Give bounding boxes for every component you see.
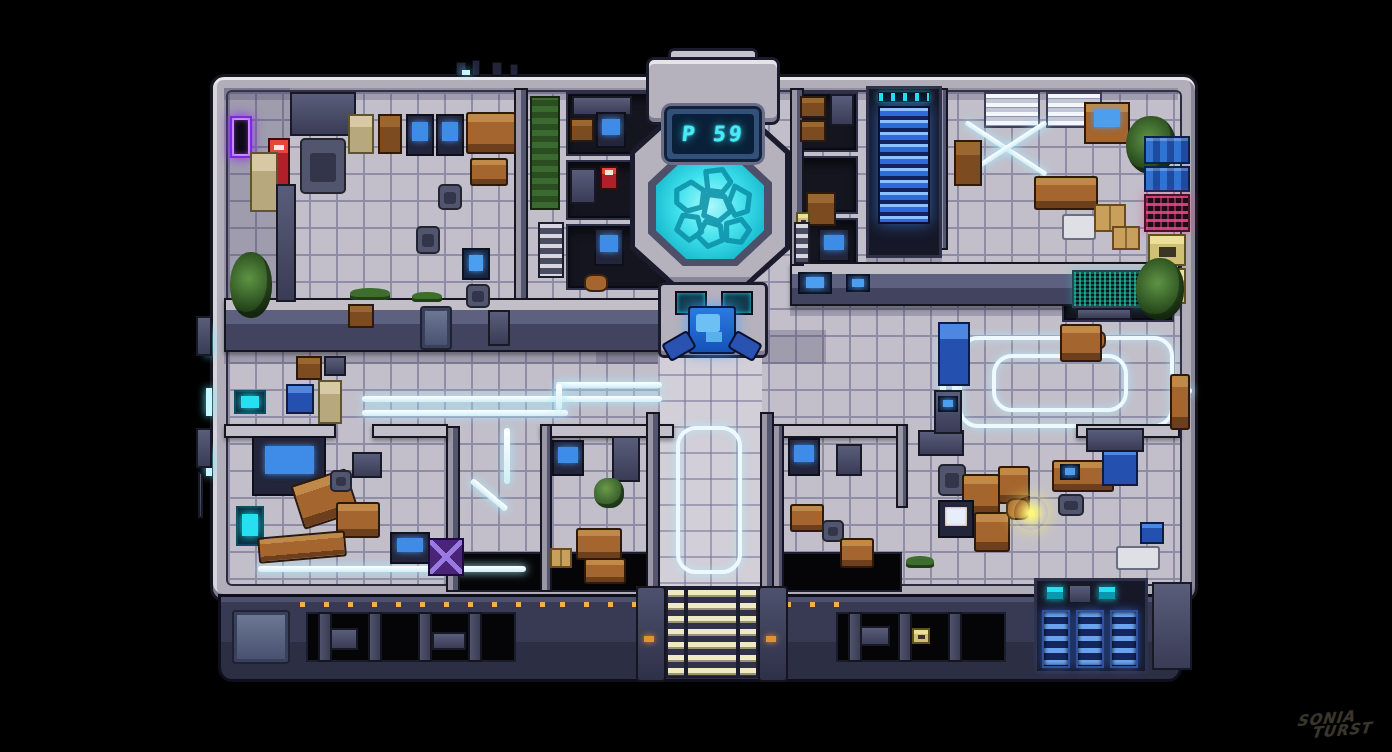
bench-dark xyxy=(1076,308,1132,320)
side-cabinet xyxy=(352,452,382,478)
loop-inner xyxy=(992,354,1128,412)
kitchen-cabinet-tan xyxy=(250,152,278,212)
stairs-blue-glow[interactable] xyxy=(878,106,930,224)
wall-cabinet xyxy=(570,168,596,204)
wood-stool xyxy=(584,274,608,292)
floor-line-join xyxy=(556,384,562,410)
server-panel xyxy=(1068,584,1092,604)
floor-line-workshop-v xyxy=(504,428,510,484)
room-bottom-dark-b xyxy=(774,552,902,592)
basement-device-yellow xyxy=(912,628,930,644)
wood-crate xyxy=(800,96,826,118)
ladder[interactable] xyxy=(794,222,810,264)
vent-panel-a xyxy=(984,92,1040,128)
roof-antenna xyxy=(510,64,518,76)
crate-tan xyxy=(550,548,572,568)
red-device xyxy=(600,166,618,190)
vending-machine-tan xyxy=(318,380,342,424)
computer-desk xyxy=(390,532,430,564)
laptop xyxy=(1060,464,1080,480)
office-chair xyxy=(438,184,462,210)
basement-door xyxy=(232,610,290,664)
basement-pillar xyxy=(948,612,962,662)
status-display-text: P 59 xyxy=(680,122,745,146)
cabinet-row xyxy=(1086,428,1144,452)
wood-desk xyxy=(1060,324,1102,362)
storage-desk xyxy=(584,558,626,584)
entrance-stairs-center[interactable] xyxy=(686,588,738,678)
wall-corridor-left xyxy=(646,412,660,592)
wall-left-room-divider xyxy=(514,88,528,308)
wood-shelf-tall xyxy=(1170,374,1190,430)
computer-desk-wood xyxy=(1084,102,1130,144)
basement-machinery xyxy=(330,628,358,650)
artist-signature: SONIA TURST xyxy=(1295,709,1373,741)
container-blue xyxy=(1144,166,1190,192)
server-screen-cyan xyxy=(1098,586,1116,600)
energy-pool-glass xyxy=(656,157,764,259)
recliner-chair xyxy=(300,138,346,194)
crate-tan xyxy=(1112,226,1140,250)
fridge-blue xyxy=(286,384,314,414)
wood-crate xyxy=(570,118,594,142)
utility-tower xyxy=(1152,582,1192,670)
office-chair xyxy=(1058,494,1084,516)
corridor-octagon xyxy=(676,426,742,574)
glow-lamp xyxy=(1014,496,1048,530)
office-chair xyxy=(466,284,490,308)
computer-desk xyxy=(552,440,584,476)
crate-column xyxy=(276,184,296,302)
console-screen xyxy=(846,274,870,292)
wood-crate xyxy=(800,120,826,142)
basement-lights xyxy=(300,602,550,607)
white-bench xyxy=(1116,546,1160,570)
microwave xyxy=(324,356,346,376)
wall-rightrooms-top xyxy=(772,424,906,438)
wood-cabinet xyxy=(378,114,402,154)
locker-tall xyxy=(612,436,640,482)
wood-desk xyxy=(790,504,824,532)
main-entrance xyxy=(636,586,784,678)
floor-plants xyxy=(350,288,390,300)
floor-line-upper xyxy=(556,382,662,388)
server-screen-cyan xyxy=(1046,586,1064,600)
roof-light xyxy=(462,70,470,75)
wall-corridor-right xyxy=(760,412,774,592)
wood-desk xyxy=(974,512,1010,552)
shelf-striped xyxy=(538,222,564,278)
wall-cabinet xyxy=(830,94,854,126)
wood-desk xyxy=(840,538,874,568)
wood-table-long xyxy=(1034,176,1098,210)
potted-tree xyxy=(1136,258,1184,320)
crate-purple xyxy=(428,538,464,576)
planter-hedge xyxy=(530,96,560,210)
server-rack-blue xyxy=(1110,610,1138,668)
computer-desk xyxy=(436,114,464,156)
console-screen xyxy=(798,272,832,294)
basement-pillar xyxy=(468,612,482,662)
floor-line-secondary xyxy=(362,410,568,416)
server-rack-blue xyxy=(1076,610,1104,668)
stair-indicator xyxy=(878,92,930,102)
hull-rod xyxy=(198,472,203,518)
computer-desk xyxy=(596,112,626,148)
wall-light-cyan xyxy=(206,388,212,416)
basement-machinery xyxy=(432,632,466,650)
wood-desk xyxy=(470,158,508,186)
computer-desk xyxy=(788,438,820,476)
floor-line-bottom xyxy=(258,566,526,572)
container-blue xyxy=(1144,136,1190,164)
floor-plants xyxy=(412,292,442,302)
roof-antenna xyxy=(472,60,480,76)
hull-bump xyxy=(196,428,212,468)
wood-desk xyxy=(576,528,622,560)
potted-plant xyxy=(594,478,624,508)
hull-bump xyxy=(196,316,212,356)
stove xyxy=(296,356,322,380)
status-display-screen: P 59 xyxy=(672,114,754,154)
machine-tan xyxy=(348,114,374,154)
wood-crate xyxy=(348,304,374,328)
neon-sign-purple xyxy=(230,116,252,158)
entrance-pillar-right xyxy=(758,586,788,682)
wall-cabinet xyxy=(836,444,862,476)
art-screen-desk xyxy=(938,500,974,538)
floor-line-main xyxy=(362,396,662,402)
server-rack-blue xyxy=(1042,610,1070,668)
status-display: P 59 xyxy=(664,106,762,162)
map-canvas[interactable]: P 59 xyxy=(0,0,1392,752)
sleep-booth xyxy=(290,92,356,136)
entrance-stairs-right[interactable] xyxy=(738,588,758,678)
signature-line2: TURST xyxy=(1311,722,1372,739)
computer-desk xyxy=(594,228,624,266)
office-chair xyxy=(416,226,440,254)
energy-pool xyxy=(656,157,764,259)
basement-pillar xyxy=(368,612,382,662)
door-panel[interactable] xyxy=(420,306,452,350)
wall-workshop-top-b xyxy=(372,424,448,438)
basement-machinery xyxy=(860,626,890,646)
terminal-desk xyxy=(462,248,490,280)
computer-desk xyxy=(406,114,434,156)
wood-desk-long xyxy=(466,112,516,154)
potted-tree xyxy=(230,252,272,318)
basement-pillar xyxy=(898,612,912,662)
neon-sign-pink xyxy=(1144,194,1190,232)
roof-antenna xyxy=(492,62,502,76)
wood-cabinet xyxy=(806,192,836,226)
locker-blue-small xyxy=(1140,522,1164,544)
bench-gray xyxy=(1062,214,1096,240)
basement-pillar xyxy=(418,612,432,662)
floor-plants xyxy=(906,556,934,568)
wall-rightrooms-mid xyxy=(896,424,908,508)
wood-cabinet xyxy=(954,140,982,186)
locker-blue-tall xyxy=(938,322,970,386)
wall-cabinet xyxy=(488,310,510,346)
console-screen-small xyxy=(938,396,958,412)
wall-screen-cyan xyxy=(234,390,266,414)
entrance-stairs-left[interactable] xyxy=(666,588,686,678)
entrance-pillar-left xyxy=(636,586,666,682)
office-chair xyxy=(330,470,352,492)
computer-desk xyxy=(818,228,850,262)
